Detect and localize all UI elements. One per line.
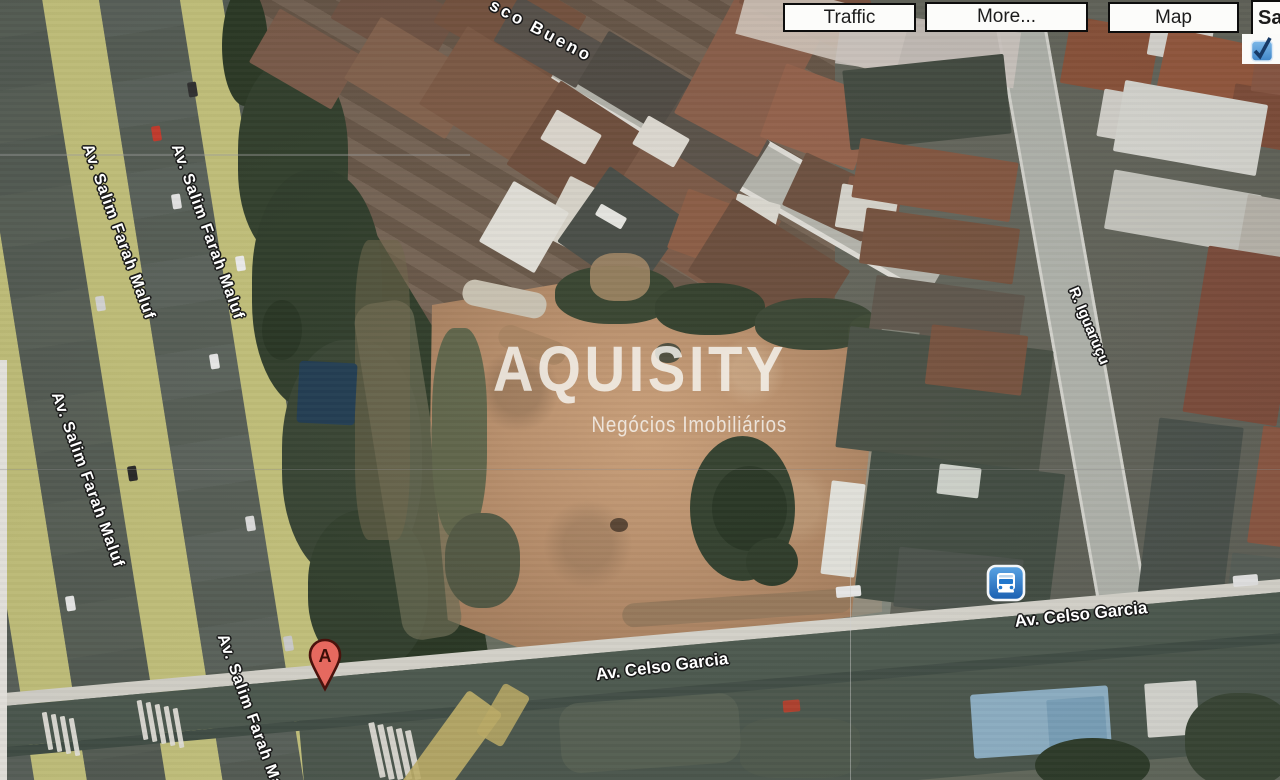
watermark-brand: AQUISITY <box>493 332 787 406</box>
scan-line <box>0 469 1280 470</box>
watermark-tagline: Negócios Imobiliários <box>591 412 787 438</box>
map-feature <box>925 324 1029 395</box>
map-feature <box>842 54 1011 150</box>
vehicle <box>1233 574 1259 587</box>
map-feature <box>610 518 628 532</box>
map-feature <box>655 283 765 335</box>
map-feature <box>355 240 410 540</box>
scan-margin <box>0 360 7 780</box>
bus-light-left <box>999 586 1003 590</box>
scan-line <box>0 154 470 156</box>
satellite-view-button[interactable]: Sa <box>1251 0 1280 36</box>
scan-line <box>850 556 851 780</box>
red-vehicle <box>783 699 801 712</box>
map-feature <box>445 513 520 608</box>
bus-stop-icon[interactable] <box>986 564 1026 604</box>
map-marker-a[interactable]: A <box>306 637 344 695</box>
bus-bumper <box>998 590 1014 593</box>
map-view-button[interactable]: Map <box>1108 2 1239 33</box>
traffic-button[interactable]: Traffic <box>783 3 916 32</box>
map-feature <box>432 328 487 538</box>
map-feature <box>558 692 742 774</box>
bus-windshield <box>999 579 1013 584</box>
bus-light-right <box>1010 586 1014 590</box>
map-feature <box>740 718 860 778</box>
satellite-map[interactable]: Av. Salim Farah Maluf Av. Salim Farah Ma… <box>0 0 1280 780</box>
swimming-pool <box>296 361 357 426</box>
map-feature <box>262 300 302 360</box>
bus-roof <box>999 575 1013 578</box>
map-feature <box>1185 693 1280 780</box>
more-button[interactable]: More... <box>925 2 1088 32</box>
map-feature <box>746 538 798 586</box>
marker-letter: A <box>319 646 332 666</box>
satellite-checkbox[interactable] <box>1250 35 1274 62</box>
vehicle <box>836 585 862 598</box>
map-feature <box>590 253 650 301</box>
